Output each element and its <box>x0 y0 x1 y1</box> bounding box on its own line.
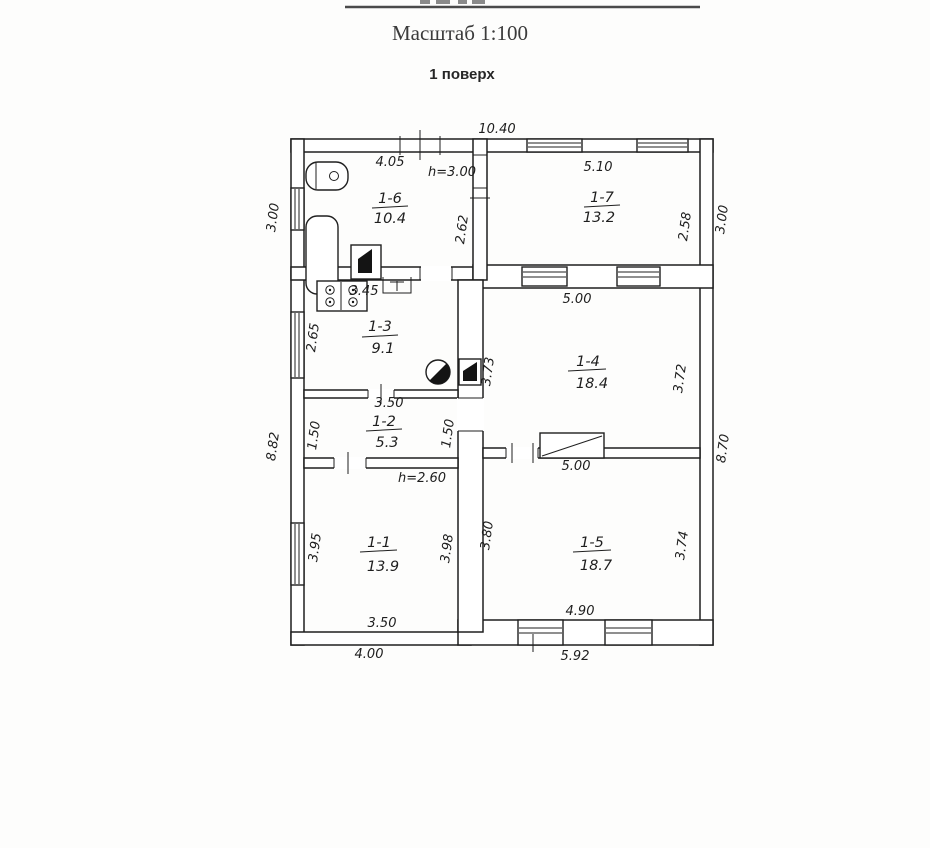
window-symbol <box>637 139 688 152</box>
dim-1-4-right: 3.72 <box>671 363 690 394</box>
window-symbol <box>522 267 567 286</box>
dim-1-5-top: 5.00 <box>562 459 591 474</box>
wall-between-1-2-and-1-1 <box>304 458 458 468</box>
window-symbol <box>605 620 652 645</box>
room-area: 13.9 <box>367 559 399 575</box>
room-id: 1-6 <box>378 191 402 207</box>
room-id: 1-7 <box>590 190 614 206</box>
dim-1-1-right: 3.98 <box>438 533 457 564</box>
floorplan-drawing: Масштаб 1:100 1 поверх <box>0 0 930 848</box>
dim-1-3-left: 2.65 <box>304 322 323 353</box>
dim-1-7-top: 5.10 <box>584 160 613 175</box>
note-height-top: h=3.00 <box>428 165 476 180</box>
dim-left-bottom: 8.82 <box>264 431 283 462</box>
window-symbol <box>617 267 660 286</box>
dim-1-4-top: 5.00 <box>563 292 592 307</box>
door-openings <box>334 155 538 469</box>
dim-1-5-left: 3.80 <box>478 520 497 551</box>
room-area: 5.3 <box>375 435 398 451</box>
dim-bottom-right: 5.92 <box>561 649 590 664</box>
wall-between-1-7-and-1-4 <box>473 265 713 288</box>
room-area: 9.1 <box>371 341 394 357</box>
clipped-text-fragment <box>472 0 485 4</box>
dim-bottom-left: 4.00 <box>355 647 384 662</box>
vent-shaft-symbol <box>459 359 481 385</box>
room-id: 1-3 <box>368 319 392 335</box>
room-area: 18.4 <box>576 376 608 392</box>
dim-right-top: 3.00 <box>713 204 732 235</box>
clipped-text-fragment <box>436 0 450 4</box>
window-symbol <box>518 620 563 645</box>
wall-exterior-bottom-right <box>458 620 713 645</box>
room-label-1-7: 1-7 13.2 <box>583 190 620 226</box>
room-area: 10.4 <box>374 211 406 227</box>
dim-1-1-bottom: 3.50 <box>368 616 397 631</box>
window-symbol <box>291 188 304 230</box>
door-opening-1-2-to-1-1 <box>334 457 366 469</box>
clipped-text-fragment <box>458 0 467 4</box>
floor-label: 1 поверх <box>429 66 495 83</box>
dim-1-2-right: 1.50 <box>439 418 458 449</box>
window-symbol <box>291 312 304 378</box>
room-area: 18.7 <box>580 558 613 574</box>
dim-1-2-left: 1.50 <box>305 420 324 451</box>
clipped-text-fragment <box>420 0 430 4</box>
door-opening-1-6-to-1-3 <box>421 266 451 281</box>
fixtures <box>306 162 604 458</box>
room-label-1-4: 1-4 18.4 <box>568 354 608 392</box>
room-id: 1-1 <box>367 535 391 551</box>
room-id: 1-4 <box>576 354 600 370</box>
dim-1-7-right: 2.58 <box>676 211 695 242</box>
boiler-symbol <box>426 360 450 384</box>
room-label-1-1: 1-1 13.9 <box>360 535 399 575</box>
note-height-bottom: h=2.60 <box>398 471 446 486</box>
toilet-symbol <box>306 162 348 190</box>
wall-middle-vertical <box>458 280 483 632</box>
dim-1-3-top: 3.45 <box>350 284 379 299</box>
dim-1-5-bottom: 4.90 <box>566 604 595 619</box>
dim-1-1-left: 3.95 <box>306 532 325 563</box>
wall-exterior-right <box>700 139 713 645</box>
floorplan-page: Масштаб 1:100 1 поверх <box>0 0 930 848</box>
room-label-1-2: 1-2 5.3 <box>366 414 402 451</box>
dim-1-5-right: 3.74 <box>673 530 692 561</box>
scale-label: Масштаб 1:100 <box>392 21 528 45</box>
door-opening-1-2-to-1-4 <box>457 398 484 431</box>
dim-1-2-top: 3.50 <box>375 396 404 411</box>
window-symbol <box>291 523 304 585</box>
window-symbol <box>527 139 582 152</box>
room-id: 1-5 <box>580 535 604 551</box>
walls <box>291 139 713 645</box>
dim-overall-top: 10.40 <box>478 122 515 137</box>
clipped-title-rule <box>345 0 700 7</box>
wall-exterior-bottom-left <box>291 632 471 645</box>
room-label-1-6: 1-6 10.4 <box>372 191 408 227</box>
dim-1-6-right: 2.62 <box>453 214 472 245</box>
room-label-1-3: 1-3 9.1 <box>362 319 398 357</box>
dim-right-bottom: 8.70 <box>714 433 733 464</box>
dim-left-top: 3.00 <box>264 202 283 233</box>
wardrobe-symbol <box>540 433 604 458</box>
vent-shaft-symbol <box>351 245 381 279</box>
dim-1-6-top: 4.05 <box>376 155 405 170</box>
room-area: 13.2 <box>583 210 615 226</box>
room-id: 1-2 <box>372 414 396 430</box>
room-label-1-5: 1-5 18.7 <box>573 535 613 574</box>
dim-1-4-left: 3.73 <box>479 356 498 387</box>
